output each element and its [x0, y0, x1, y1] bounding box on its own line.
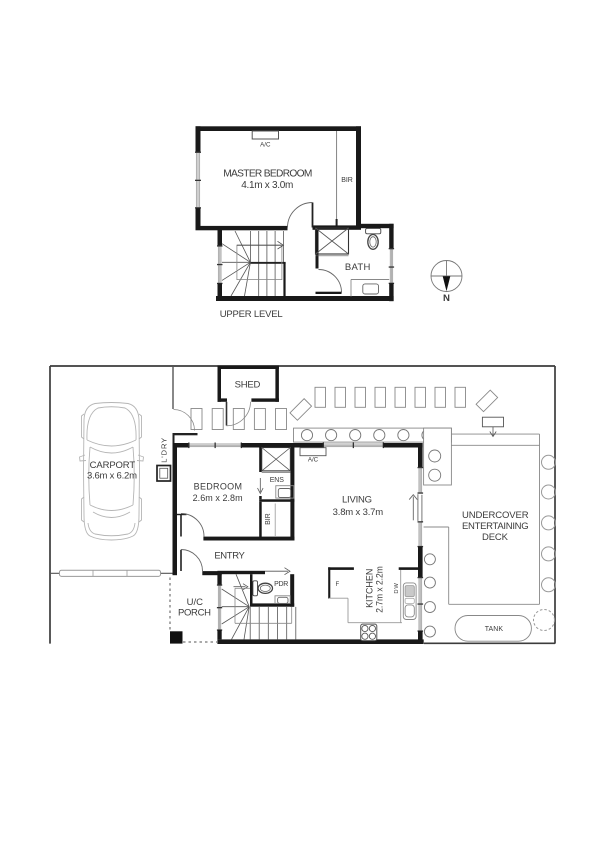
svg-text:CARPORT: CARPORT: [90, 460, 136, 471]
svg-text:TANK: TANK: [485, 626, 504, 633]
svg-text:UNDERCOVER: UNDERCOVER: [462, 510, 529, 521]
svg-text:A/C: A/C: [308, 457, 319, 464]
svg-text:BIR: BIR: [341, 177, 353, 184]
svg-text:DECK: DECK: [482, 532, 509, 543]
svg-text:KITCHEN: KITCHEN: [364, 569, 374, 608]
svg-text:PDR: PDR: [274, 581, 288, 588]
svg-text:ENTERTAINING: ENTERTAINING: [462, 521, 529, 532]
svg-text:ENS: ENS: [270, 477, 285, 484]
svg-text:L'DRY: L'DRY: [159, 438, 168, 463]
svg-text:BEDROOM: BEDROOM: [194, 481, 242, 491]
svg-text:ENTRY: ENTRY: [214, 550, 245, 561]
svg-text:N: N: [443, 293, 450, 304]
svg-text:F: F: [335, 582, 339, 588]
svg-text:2.7m x 2.2m: 2.7m x 2.2m: [374, 566, 384, 613]
svg-text:3.8m x 3.7m: 3.8m x 3.7m: [333, 507, 384, 518]
svg-text:4.1m x 3.0m: 4.1m x 3.0m: [241, 180, 293, 191]
svg-text:UPPER LEVEL: UPPER LEVEL: [220, 309, 283, 320]
svg-text:PORCH: PORCH: [178, 607, 211, 618]
svg-text:SHED: SHED: [235, 380, 261, 391]
svg-text:DW: DW: [394, 583, 400, 594]
svg-text:2.6m x 2.8m: 2.6m x 2.8m: [193, 493, 243, 503]
svg-text:LIVING: LIVING: [342, 495, 372, 506]
svg-text:BATH: BATH: [345, 262, 371, 273]
svg-text:BIR: BIR: [265, 513, 272, 525]
svg-text:A/C: A/C: [260, 141, 271, 148]
svg-text:3.6m x 6.2m: 3.6m x 6.2m: [87, 471, 137, 482]
svg-text:MASTER BEDROOM: MASTER BEDROOM: [223, 168, 312, 179]
